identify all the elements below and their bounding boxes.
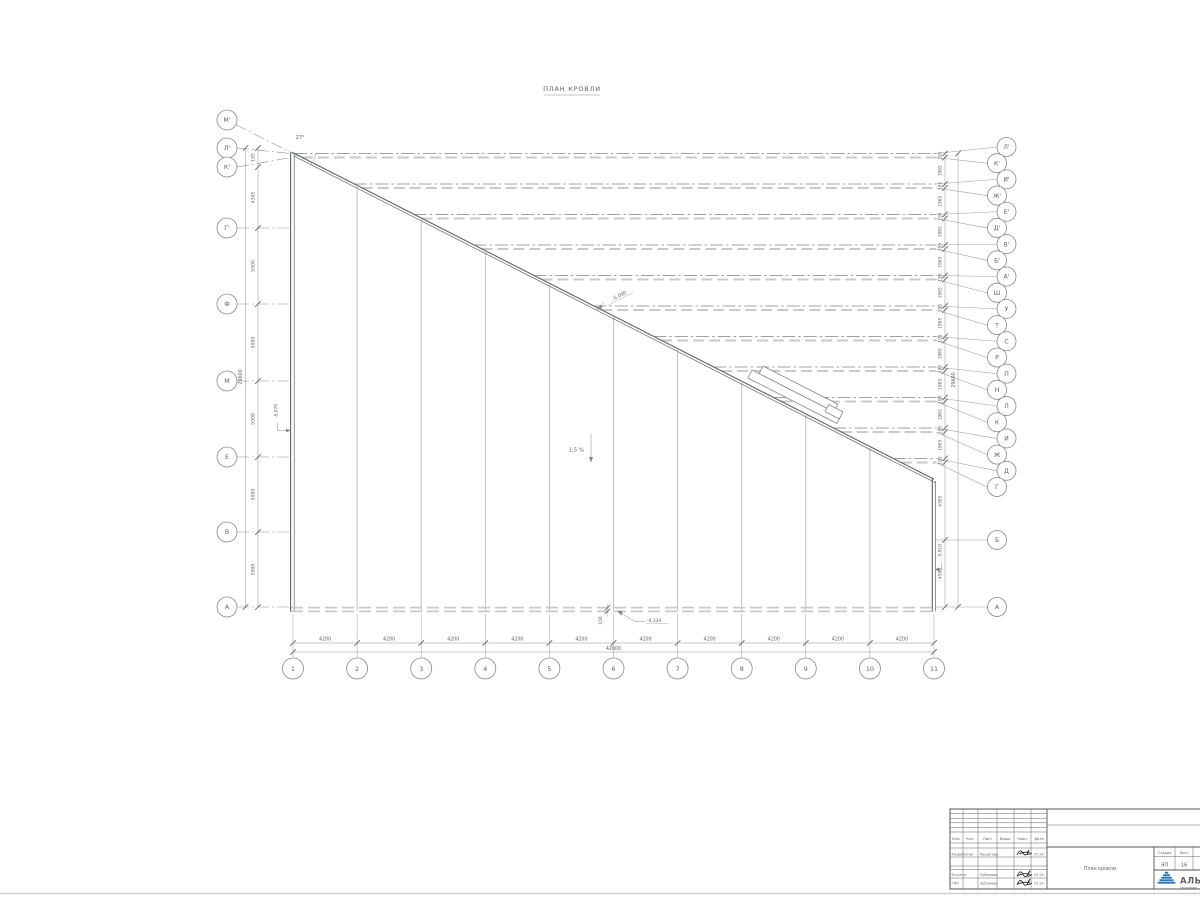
title-block-rows: Разработал Решетова 07.24 Н.контр Зубано… (952, 852, 1044, 885)
col-data: Дата (1034, 837, 1043, 841)
row1-date: 07.24 (1034, 852, 1043, 856)
axis-label-bottom: 4 (483, 666, 487, 673)
dim-label: 4200 (511, 637, 523, 643)
dim-label: 1965 (938, 318, 944, 329)
dim-label: 195 (938, 182, 944, 190)
elev-right-label: -5,910 (938, 544, 944, 558)
axes-and-dimensions: М'Л'К'Г'ФМЕВА195434550005000500050005000… (217, 110, 1016, 679)
axis-label-bottom: 1 (291, 666, 295, 673)
dim-label: 4200 (704, 637, 716, 643)
axis-label-right: Л' (1003, 144, 1010, 151)
axis-label-bottom: 2 (355, 666, 359, 673)
axis-label-bottom: 6 (611, 666, 615, 673)
axis-label-left: Л' (224, 145, 231, 152)
axis-label-right: И' (1003, 177, 1009, 184)
axis-line-left (237, 158, 291, 168)
axis-label-left: А (225, 604, 230, 611)
axis-label-right: Е' (1004, 209, 1010, 216)
dim-label: 4200 (896, 637, 908, 643)
axis-leader-right (936, 402, 987, 423)
dim-label: 4305 (938, 496, 944, 507)
axis-label-right: А' (1004, 274, 1010, 281)
axis-label-right: С (1004, 338, 1008, 345)
roof-edge-diagonal-inner (294, 156, 936, 483)
col-ndok: №док. (1000, 837, 1012, 841)
dim-label: 195 (938, 395, 944, 403)
dim-label: 1965 (938, 257, 944, 268)
axis-label-right: К (995, 419, 1000, 426)
axis-label-left: М' (223, 117, 230, 124)
elev-bottom-leader (620, 613, 645, 622)
dim-label: 1965 (938, 379, 944, 390)
dim-label: 195 (938, 426, 944, 434)
dim-label: 195 (938, 304, 944, 312)
row1-name: Решетова (980, 852, 999, 856)
slope-arrow-head (589, 457, 593, 463)
axis-label-right: Н (995, 387, 1000, 394)
dim-overall-right-label: 29600 (951, 372, 957, 387)
roof-hatch-strip-lower (748, 370, 841, 423)
dim-label: 195 (938, 212, 944, 220)
axis-label-left: Г' (224, 225, 230, 232)
sheet-label: Лист (1179, 851, 1188, 855)
dim-overall-left-label: 29600 (238, 369, 244, 384)
signature-3 (1017, 879, 1032, 885)
row2-date: 07.24 (1034, 873, 1043, 877)
axis-label-left: В (225, 529, 229, 536)
axis-label-right: П (1004, 371, 1009, 378)
dim100-label: 100 (598, 616, 604, 625)
dim-label: 1965 (938, 440, 944, 451)
col-izm: Изм. (952, 837, 960, 841)
axis-label-bottom: 8 (740, 666, 744, 673)
dim-label: 4200 (319, 637, 331, 643)
axis-label-right: У (1005, 306, 1009, 313)
stage-label: Стадия (1158, 851, 1172, 855)
logo-subtext: строительн (1180, 885, 1197, 889)
axis-leader-right (936, 341, 987, 358)
signature-1 (1017, 850, 1032, 855)
axis-label-bottom: 9 (804, 666, 808, 673)
axis-label-left: Ф (224, 301, 230, 308)
axis-label-right: Ж' (993, 193, 1001, 200)
elev-roof-label: -5,090 (611, 290, 628, 302)
axis-label-bottom: 10 (866, 666, 874, 673)
signature-2 (1017, 871, 1032, 877)
title-block: Изм. Кол. Лист №док. Подп. Дата Разработ… (950, 809, 1200, 889)
axis-leader-right (936, 310, 987, 325)
page-title: ПЛАН КРОВЛИ (543, 85, 601, 93)
axis-label-right: Д' (994, 225, 1001, 232)
dim-label: 4345 (251, 192, 257, 204)
dim-label: 195 (938, 334, 944, 342)
dim-label: 1965 (938, 165, 944, 176)
dim-label: 195 (938, 151, 944, 159)
slope-label: 1,5 % (569, 448, 584, 454)
dim-label: 195 (938, 456, 944, 464)
col-list: Лист (983, 837, 992, 841)
grid-lines (294, 154, 936, 612)
axis-label-right: Л (1004, 403, 1009, 410)
axis-label-bottom: 5 (547, 666, 551, 673)
col-kol: Кол. (966, 837, 974, 841)
dim-overall-bottom-label: 42000 (606, 646, 621, 652)
axis-label-right: Р (995, 355, 999, 362)
dim-label: 1965 (938, 348, 944, 359)
dim-label: 1965 (938, 226, 944, 237)
axis-leader-right (936, 463, 987, 487)
dim-label: 4200 (447, 637, 459, 643)
axis-label-right: Д (1004, 468, 1009, 475)
elev-left-leader (278, 423, 287, 431)
axis-label-bottom: 3 (419, 666, 423, 673)
dim-label: 195 (938, 365, 944, 373)
axis-label-right: Б' (994, 258, 1000, 265)
elev-left-label: -5,070 (274, 404, 280, 418)
dim-label: 4200 (639, 637, 651, 643)
company-logo: АЛЬЯ строительн (1158, 872, 1200, 890)
dim-label: 1965 (938, 287, 944, 298)
sheet-value: 16 (1181, 863, 1188, 869)
signatures (1017, 850, 1032, 885)
elev-roof-group: -5,090 (606, 287, 634, 305)
axis-label-right: Б (995, 537, 999, 544)
axis-label-right: Т (994, 322, 999, 329)
title-block-header: Изм. Кол. Лист №док. Подп. Дата (952, 837, 1043, 841)
dim-label: 4500 (938, 568, 944, 579)
axis-label-left: К' (224, 164, 230, 171)
drawing-name: План кровли (1084, 866, 1116, 872)
row3-date: 07.24 (1034, 882, 1043, 886)
roof-hatch (748, 362, 845, 423)
roof-edge-diagonal-outer (292, 152, 934, 479)
stage-value: ЭП (1161, 863, 1169, 869)
axis-label-right: И (1004, 436, 1009, 443)
row2-role: Н.контр (952, 873, 968, 877)
axis-label-right: В' (1004, 241, 1010, 248)
dim-label: 5000 (251, 489, 257, 501)
dim-label: 5000 (251, 564, 257, 576)
row2-name: Зубанова (980, 873, 998, 877)
dim-label: 5000 (251, 413, 257, 425)
axis-label-left: Е (225, 454, 229, 461)
axis-leader-right (936, 371, 987, 390)
axis-label-bottom: 7 (676, 666, 680, 673)
row3-role: ГАП (952, 882, 960, 886)
axis-label-left: М (224, 378, 229, 385)
logo-triangle-icon (1158, 872, 1176, 884)
dim-label: 195 (938, 243, 944, 251)
dim-label: 4200 (768, 637, 780, 643)
axis-label-right: Ж (994, 452, 1001, 459)
angle-label: 27° (296, 135, 305, 141)
dim-label: 1965 (938, 196, 944, 207)
elev-bottom-arrow (617, 611, 623, 616)
dim-label: 5000 (251, 260, 257, 272)
dim-label: 5000 (251, 337, 257, 349)
annotations: 27° 1,5 % -5,090 -5,070 -5,910 -4,334 10… (274, 135, 944, 625)
row1-role: Разработал (952, 852, 974, 856)
dim-label: 4200 (575, 637, 587, 643)
axis-line-left (236, 125, 313, 164)
dim-label: 195 (938, 273, 944, 281)
col-podp: Подп. (1017, 837, 1028, 841)
roof-plan-drawing: ПЛАН КРОВЛИ 27° 1,5 % -5,090 -5,070 - (0, 0, 1200, 900)
axis-label-right: К' (994, 160, 1000, 167)
row3-name: Зубанова (980, 882, 998, 886)
elev-bottom-label: -4,334 (647, 618, 661, 624)
dim-label: 4200 (383, 637, 395, 643)
axis-label-bottom: 11 (930, 666, 938, 673)
axis-label-right: Г (995, 484, 999, 491)
dim-label: 4200 (832, 637, 844, 643)
axis-leader-right (936, 147, 997, 154)
dim-label: 195 (251, 153, 257, 162)
dim-label: 1965 (938, 409, 944, 420)
axis-label-right: Ш (994, 290, 1000, 297)
